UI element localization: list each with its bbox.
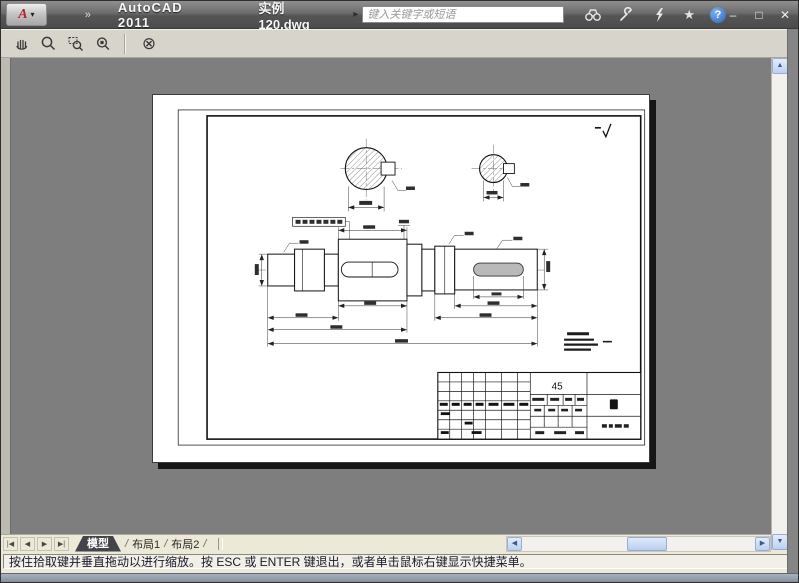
toolbar-separator [124, 34, 126, 54]
section-view-left [340, 139, 415, 212]
tab-nav-prev-button[interactable]: ◀ [20, 537, 35, 551]
roughness-symbol [595, 124, 611, 137]
application-menu-button[interactable]: A ▾ [6, 3, 47, 26]
tab-model[interactable]: 模型 [75, 536, 121, 552]
tab-nav-last-button[interactable]: ▶| [54, 537, 69, 551]
help-question-glyph: ? [715, 9, 722, 21]
autocad-window: A ▾ » AutoCAD 2011 实例120.dwg ▸ ★ ? – □ [0, 0, 799, 583]
search-flyout-arrow-icon[interactable]: ▸ [353, 9, 358, 20]
preview-toolbar: ⊗ [1, 29, 799, 58]
autocad-logo-icon: A [18, 8, 27, 22]
material-label: 45 [552, 381, 564, 392]
canvas-left-edge [1, 58, 11, 534]
title-bar: A ▾ » AutoCAD 2011 实例120.dwg ▸ ★ ? – □ [1, 1, 799, 29]
scroll-left-button[interactable]: ◀ [507, 537, 522, 551]
tab-scroll-splitter[interactable] [218, 538, 223, 550]
horizontal-scrollbar[interactable]: ◀ ▶ [506, 536, 771, 552]
section-view-right [472, 145, 530, 202]
window-right-edge [787, 29, 799, 573]
horizontal-scroll-thumb[interactable] [627, 537, 667, 551]
favorites-star-icon[interactable]: ★ [683, 8, 695, 21]
wrench-icon[interactable] [617, 6, 635, 24]
tab-separator: / [125, 538, 128, 550]
window-resize-edge[interactable] [1, 573, 799, 583]
infocenter-icons: ★ ? [584, 6, 726, 24]
drawing-canvas[interactable]: 45 [1, 58, 771, 534]
exchange-bolt-icon[interactable] [650, 6, 668, 24]
pan-button[interactable] [9, 32, 33, 56]
window-controls: – □ ✕ [726, 8, 792, 22]
tab-layout1[interactable]: 布局1 [132, 536, 160, 552]
close-button[interactable]: ✕ [778, 8, 792, 22]
status-bar: 按住拾取键并垂直拖动以进行缩放。按 ESC 或 ENTER 键退出，或者单击鼠标… [1, 552, 799, 573]
app-title: AutoCAD 2011 [118, 0, 216, 30]
technical-notes [564, 334, 612, 350]
quick-access-overflow-icon[interactable]: » [85, 9, 90, 21]
help-icon[interactable]: ? [710, 7, 726, 23]
search-input[interactable] [362, 6, 564, 23]
search-binoculars-icon[interactable] [584, 6, 602, 24]
shaft-drawing: 45 [153, 95, 649, 462]
vertical-scrollbar[interactable]: ▲ ▼ [771, 58, 787, 550]
maximize-button[interactable]: □ [752, 8, 766, 22]
layout-tab-bar: |◀ ◀ ▶ ▶| 模型 / 布局1 / 布局2 / ◀ ▶ [1, 534, 771, 552]
tab-nav-next-button[interactable]: ▶ [37, 537, 52, 551]
tab-separator: / [203, 538, 206, 550]
tab-nav-first-button[interactable]: |◀ [3, 537, 18, 551]
zoom-window-button[interactable] [63, 32, 87, 56]
scroll-down-button[interactable]: ▼ [772, 534, 788, 550]
document-title: 实例120.dwg [258, 0, 333, 32]
scroll-up-button[interactable]: ▲ [772, 58, 788, 74]
title-block: 45 [438, 372, 641, 439]
plot-preview-paper: 45 [152, 94, 650, 463]
tab-separator: / [164, 538, 167, 550]
close-preview-button[interactable]: ⊗ [137, 32, 161, 56]
scroll-right-button[interactable]: ▶ [755, 537, 770, 551]
main-shaft-view [257, 239, 549, 301]
zoom-realtime-button[interactable] [36, 32, 60, 56]
groove-callout [293, 217, 350, 239]
chevron-down-icon: ▾ [31, 10, 35, 19]
zoom-original-button[interactable] [90, 32, 114, 56]
minimize-button[interactable]: – [726, 8, 740, 22]
tab-layout2[interactable]: 布局2 [171, 536, 199, 552]
status-message: 按住拾取键并垂直拖动以进行缩放。按 ESC 或 ENTER 键退出，或者单击鼠标… [3, 554, 798, 569]
